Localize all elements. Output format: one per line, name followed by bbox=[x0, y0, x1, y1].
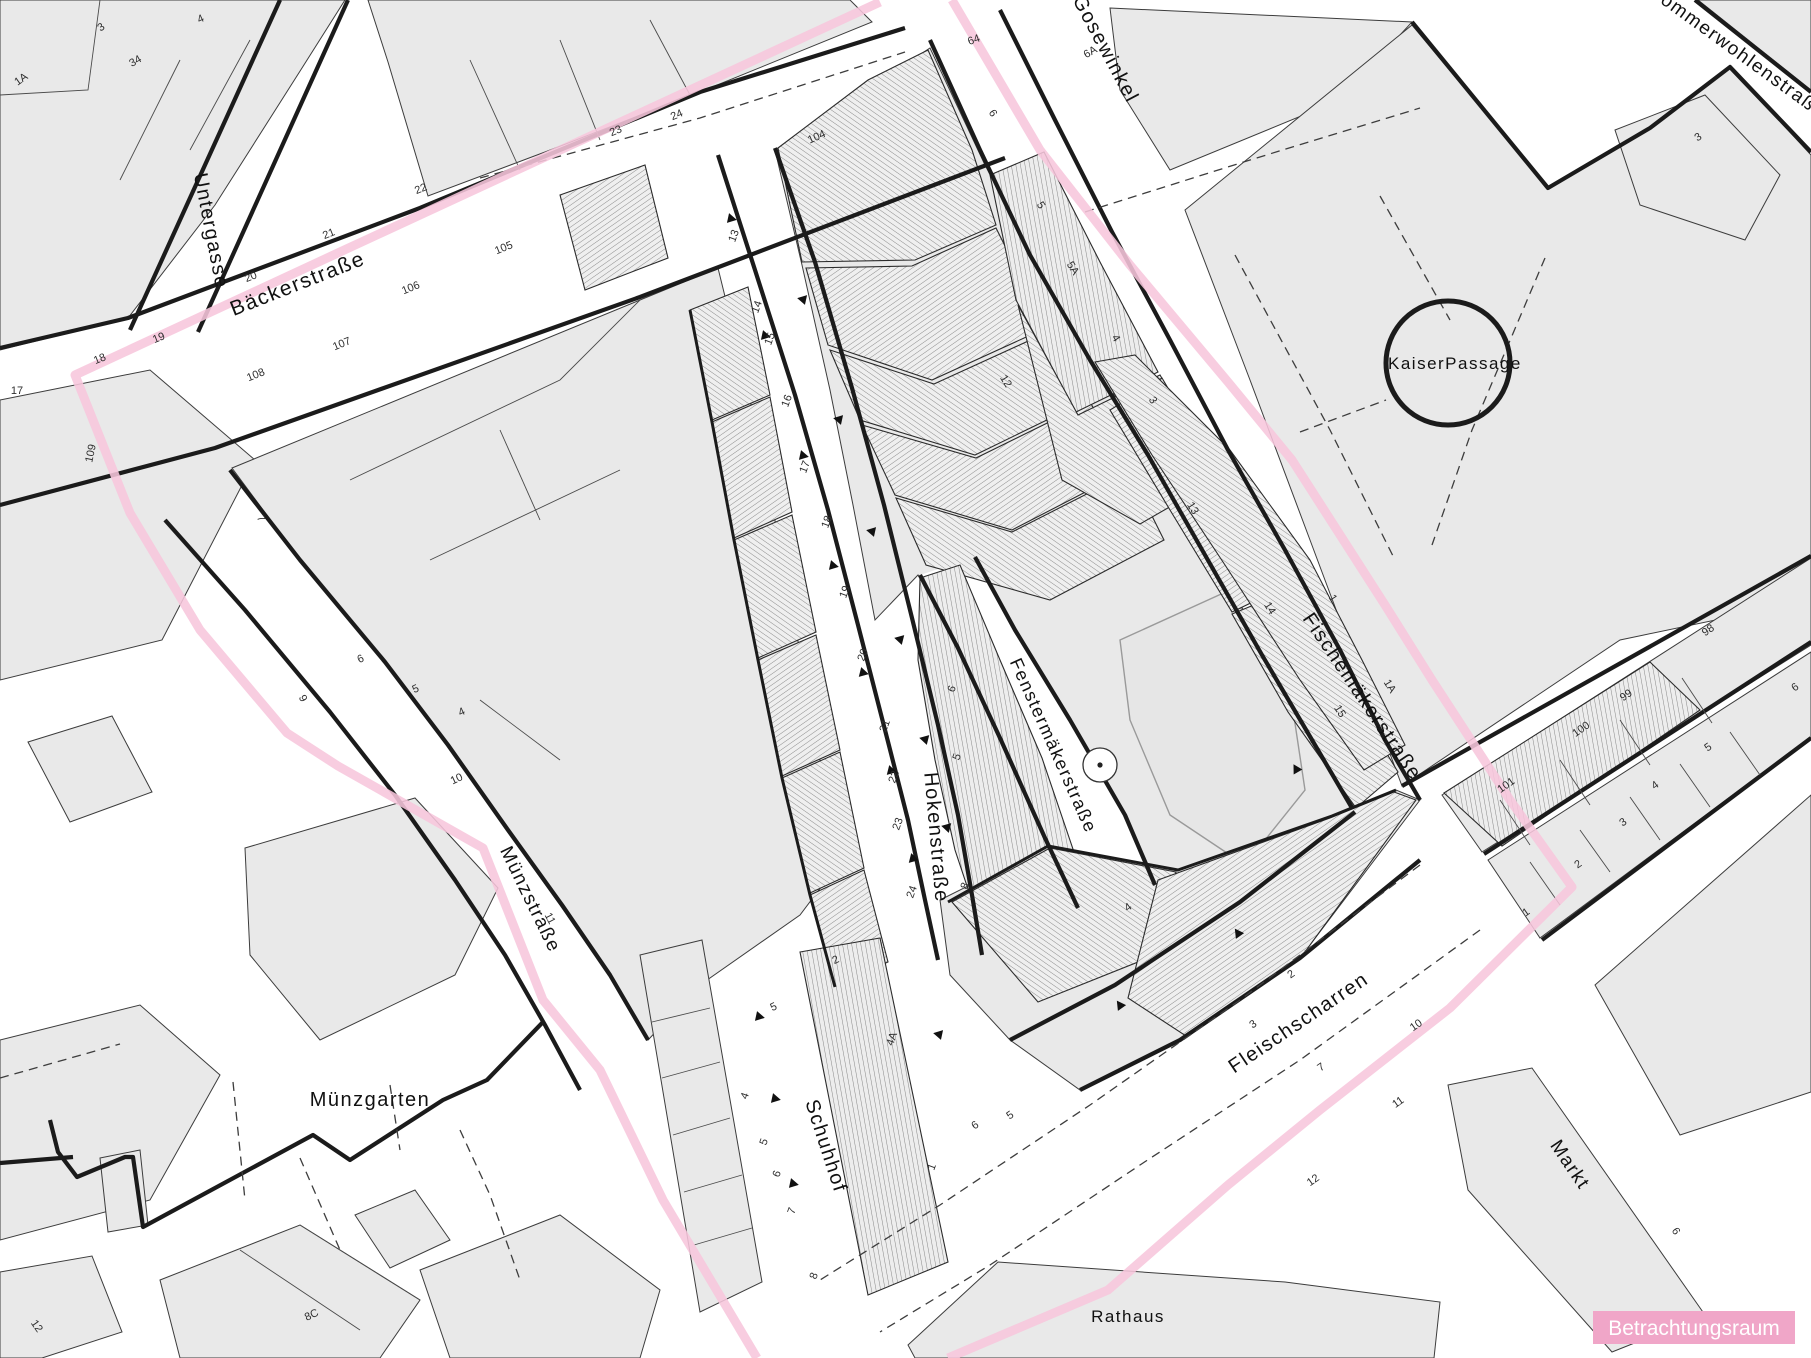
gable-arrow-icon bbox=[789, 1178, 800, 1190]
street-label-muenzgarten: Münzgarten bbox=[310, 1089, 431, 1111]
house-number: 107 bbox=[331, 335, 353, 353]
legend: Betrachtungsraum bbox=[1593, 1311, 1795, 1344]
block-bottomleft-4 bbox=[420, 1215, 660, 1358]
house-number: 6 bbox=[969, 1119, 981, 1132]
house-number: 7 bbox=[785, 1206, 798, 1216]
house-number: 13 bbox=[726, 228, 741, 244]
city-map: 1A33442423222120191817105106107108109796… bbox=[0, 0, 1811, 1358]
street-label-kaiserpassage: KaiserPassage bbox=[1388, 354, 1522, 373]
block-bottomleft-5 bbox=[355, 1190, 450, 1268]
house-number: 11 bbox=[1390, 1094, 1406, 1110]
house-number: 17 bbox=[11, 385, 23, 397]
gable-arrow-icon bbox=[829, 560, 840, 572]
house-number: 21 bbox=[877, 718, 892, 734]
gable-arrow-icon bbox=[893, 633, 904, 645]
house-number: 16 bbox=[779, 393, 794, 409]
block-west-small bbox=[28, 716, 152, 822]
gable-arrow-icon bbox=[918, 733, 929, 745]
house-number: 6 bbox=[355, 653, 366, 666]
house-number: 9 bbox=[296, 693, 309, 704]
gable-arrow-icon bbox=[771, 1093, 782, 1105]
house-number: 12 bbox=[1305, 1172, 1322, 1189]
house-number: 8 bbox=[807, 1271, 820, 1281]
house-number: 4 bbox=[738, 1091, 751, 1101]
house-number: 6 bbox=[986, 108, 999, 120]
house-number: 105 bbox=[493, 239, 515, 257]
house-number: 5 bbox=[1004, 1109, 1016, 1122]
house-number: 24 bbox=[669, 107, 685, 123]
house-number: 23 bbox=[890, 816, 905, 832]
house-number: 6 bbox=[770, 1169, 783, 1179]
house-number: 3 bbox=[1247, 1018, 1259, 1031]
house-number: 17 bbox=[797, 459, 812, 475]
house-number: 24 bbox=[904, 884, 919, 900]
gable-arrow-icon bbox=[796, 293, 807, 305]
house-number: 10 bbox=[449, 771, 465, 787]
tree-dot bbox=[1097, 762, 1102, 767]
gable-arrow-icon bbox=[755, 1011, 766, 1023]
house-number: 7 bbox=[1315, 1061, 1327, 1074]
house-number: 6 bbox=[1669, 1226, 1682, 1238]
house-number: 5 bbox=[768, 1001, 779, 1014]
house-number: 2 bbox=[1285, 968, 1297, 981]
house-number: 14 bbox=[749, 299, 764, 315]
gable-arrow-icon bbox=[932, 1028, 943, 1040]
betrachtungsraum-label: Betrachtungsraum bbox=[1608, 1317, 1780, 1340]
block-west-edge bbox=[0, 370, 255, 680]
roof bbox=[560, 165, 668, 290]
block-bottomleft-6 bbox=[0, 1256, 122, 1358]
map-stage: 1A33442423222120191817105106107108109796… bbox=[0, 0, 1811, 1358]
house-number: 5 bbox=[757, 1137, 770, 1147]
house-number: 106 bbox=[400, 279, 422, 297]
house-number: 108 bbox=[245, 366, 267, 384]
house-number: 7 bbox=[254, 513, 267, 524]
street-label-rathaus: Rathaus bbox=[1091, 1307, 1165, 1326]
